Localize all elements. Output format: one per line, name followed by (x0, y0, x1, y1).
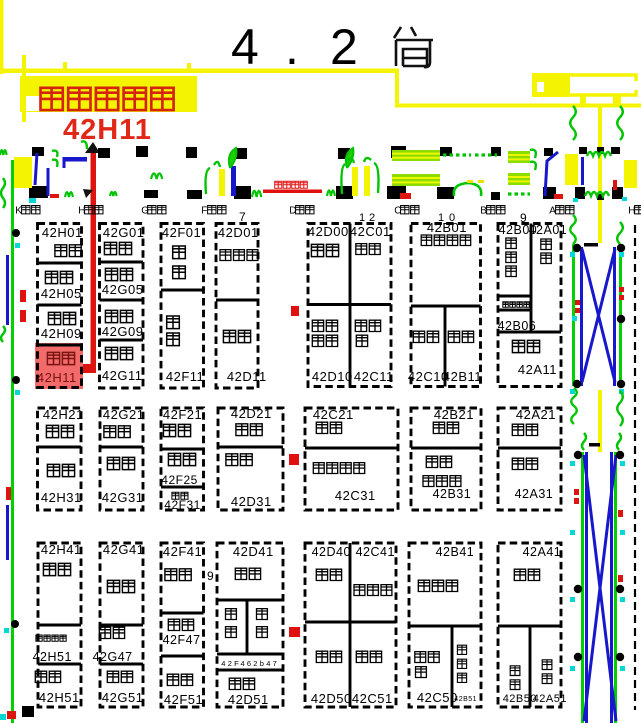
svg-text:42D31: 42D31 (231, 494, 272, 509)
svg-text:42B21: 42B21 (434, 407, 474, 422)
svg-text:42F51: 42F51 (164, 692, 203, 707)
svg-text:42H51: 42H51 (39, 690, 80, 705)
svg-text:42D11: 42D11 (227, 369, 267, 384)
svg-text:2: 2 (253, 659, 257, 668)
svg-text:42C50: 42C50 (417, 690, 458, 705)
svg-text:42G21: 42G21 (103, 407, 145, 422)
svg-text:42G05: 42G05 (102, 282, 144, 297)
svg-text:9: 9 (207, 569, 214, 583)
svg-text:42A21: 42A21 (516, 407, 556, 422)
svg-text:42F47: 42F47 (163, 633, 201, 647)
svg-text:42F11: 42F11 (166, 369, 204, 384)
svg-text:42F31: 42F31 (164, 498, 201, 512)
svg-text:F: F (201, 206, 207, 217)
svg-text:42H11: 42H11 (37, 370, 77, 385)
svg-text:42G31: 42G31 (102, 490, 144, 505)
svg-text:42G09: 42G09 (102, 324, 144, 339)
svg-text:42D51: 42D51 (228, 692, 269, 707)
svg-text:.: . (285, 19, 299, 75)
svg-text:42A31: 42A31 (515, 487, 554, 501)
svg-text:42C31: 42C31 (335, 488, 376, 503)
svg-text:42H41: 42H41 (41, 542, 82, 557)
svg-text:42G51: 42G51 (102, 690, 144, 705)
svg-text:42C01: 42C01 (350, 224, 391, 239)
svg-text:4: 4 (266, 659, 270, 668)
svg-text:42H51: 42H51 (33, 650, 72, 664)
svg-text:6: 6 (247, 659, 251, 668)
svg-text:42B06: 42B06 (498, 319, 537, 333)
svg-text:42D50: 42D50 (311, 691, 352, 706)
svg-text:42D21: 42D21 (231, 406, 272, 421)
svg-text:42H21: 42H21 (43, 407, 84, 422)
svg-text:b: b (260, 659, 264, 668)
svg-text:42B11: 42B11 (443, 369, 482, 384)
svg-text:4: 4 (231, 19, 259, 75)
svg-text:42F21: 42F21 (163, 407, 202, 422)
svg-text:42H05: 42H05 (41, 286, 82, 301)
svg-text:42B41: 42B41 (436, 545, 475, 559)
svg-text:7: 7 (273, 659, 277, 668)
svg-text:2: 2 (330, 19, 358, 75)
svg-text:42D01: 42D01 (218, 225, 259, 240)
svg-text:42F41: 42F41 (163, 544, 202, 559)
svg-text:42H01: 42H01 (42, 225, 83, 240)
svg-text:42D40: 42D40 (312, 545, 351, 559)
svg-text:42C11: 42C11 (354, 369, 394, 384)
svg-text:42C21: 42C21 (313, 407, 354, 422)
svg-text:42F01: 42F01 (162, 225, 201, 240)
svg-text:42A11: 42A11 (518, 362, 557, 377)
svg-text:42F25: 42F25 (161, 473, 198, 487)
svg-text:4: 4 (221, 659, 225, 668)
svg-text:42C51: 42C51 (352, 691, 393, 706)
svg-text:42H31: 42H31 (41, 490, 82, 505)
svg-text:42C41: 42C41 (356, 545, 395, 559)
svg-text:42A51: 42A51 (533, 693, 567, 705)
svg-text:42H11: 42H11 (63, 114, 152, 146)
svg-text:42B31: 42B31 (433, 487, 472, 501)
svg-text:7: 7 (239, 210, 246, 224)
svg-text:F: F (234, 659, 239, 668)
svg-text:42D00: 42D00 (308, 224, 349, 239)
svg-text:42B51: 42B51 (454, 696, 477, 703)
svg-text:2: 2 (228, 659, 232, 668)
svg-text:42G11: 42G11 (102, 368, 143, 383)
svg-text:42G41: 42G41 (103, 542, 145, 557)
svg-text:42A01: 42A01 (529, 223, 568, 237)
svg-text:42G01: 42G01 (103, 225, 145, 240)
svg-text:42D10: 42D10 (312, 369, 353, 384)
svg-text:42D41: 42D41 (233, 544, 274, 559)
svg-text:42A41: 42A41 (523, 545, 562, 559)
svg-text:42B01: 42B01 (427, 220, 467, 235)
svg-text:4: 4 (241, 659, 245, 668)
svg-text:42H09: 42H09 (41, 326, 82, 341)
svg-text:42G47: 42G47 (93, 650, 133, 664)
